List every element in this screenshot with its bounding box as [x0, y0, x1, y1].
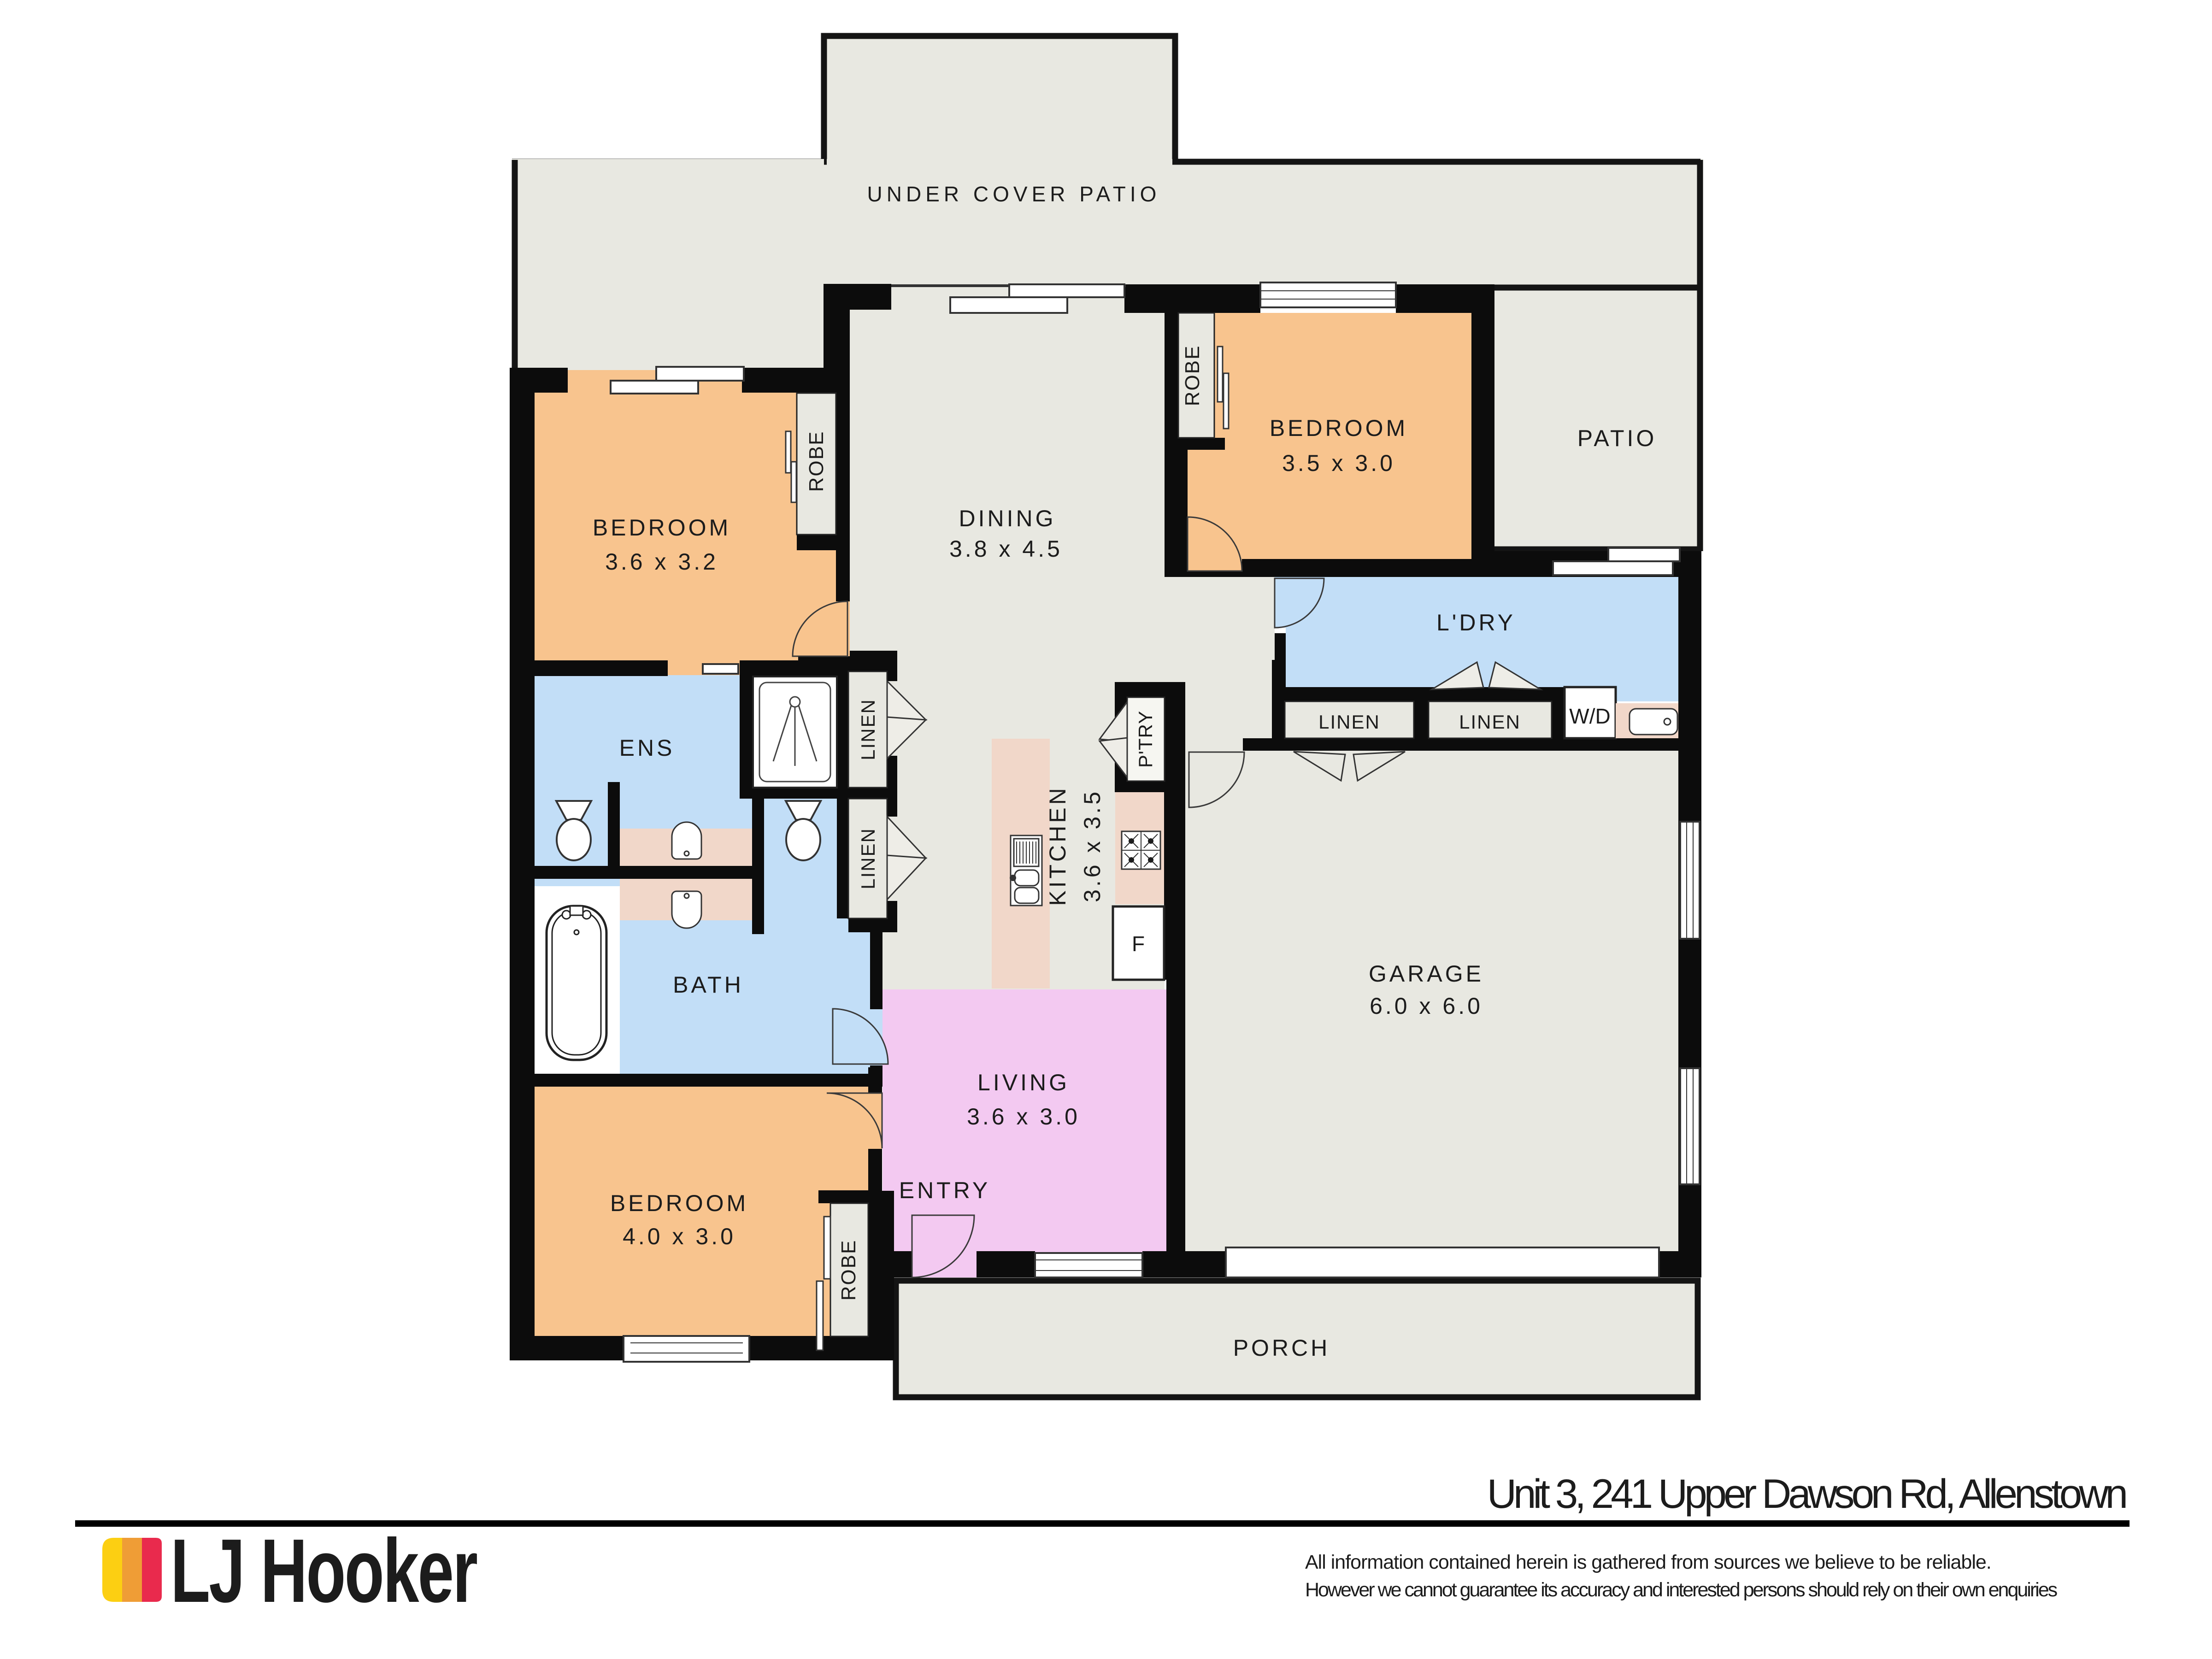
svg-text:ROBE: ROBE — [837, 1240, 860, 1301]
svg-text:BEDROOM: BEDROOM — [1270, 415, 1408, 441]
svg-text:L'DRY: L'DRY — [1436, 610, 1516, 635]
svg-text:ENS: ENS — [619, 735, 675, 761]
svg-text:Unit 3, 241 Upper Dawson Rd, A: Unit 3, 241 Upper Dawson Rd, Allenstown — [1487, 1471, 2126, 1517]
svg-text:F: F — [1132, 932, 1145, 956]
svg-text:3.8 x 4.5: 3.8 x 4.5 — [949, 536, 1063, 562]
svg-text:LINEN: LINEN — [857, 828, 879, 889]
svg-text:4.0 x 3.0: 4.0 x 3.0 — [623, 1224, 736, 1249]
svg-text:LINEN: LINEN — [857, 699, 879, 760]
svg-text:3.5 x 3.0: 3.5 x 3.0 — [1282, 450, 1395, 476]
svg-text:ROBE: ROBE — [1181, 345, 1204, 406]
svg-text:6.0 x 6.0: 6.0 x 6.0 — [1370, 993, 1483, 1019]
svg-text:However we cannot guarantee it: However we cannot guarantee its accuracy… — [1305, 1579, 2057, 1601]
svg-text:DINING: DINING — [959, 506, 1056, 531]
svg-text:KITCHEN: KITCHEN — [1045, 785, 1071, 906]
svg-text:3.6 x 3.2: 3.6 x 3.2 — [605, 549, 718, 575]
svg-text:GARAGE: GARAGE — [1369, 961, 1484, 987]
svg-text:BEDROOM: BEDROOM — [593, 515, 731, 541]
svg-text:P'TRY: P'TRY — [1135, 711, 1156, 768]
svg-text:UNDER COVER PATIO: UNDER COVER PATIO — [867, 182, 1161, 206]
svg-text:ROBE: ROBE — [805, 431, 828, 492]
svg-text:PATIO: PATIO — [1577, 425, 1657, 451]
svg-text:PORCH: PORCH — [1233, 1335, 1330, 1361]
svg-text:BATH: BATH — [673, 972, 744, 998]
svg-text:LINEN: LINEN — [1459, 711, 1521, 733]
svg-text:LINEN: LINEN — [1318, 711, 1380, 733]
svg-text:LIVING: LIVING — [977, 1070, 1070, 1095]
svg-text:3.6 x 3.0: 3.6 x 3.0 — [967, 1104, 1080, 1130]
svg-text:BEDROOM: BEDROOM — [610, 1190, 748, 1216]
svg-text:3.6 x 3.5: 3.6 x 3.5 — [1079, 789, 1105, 902]
svg-text:All information contained here: All information contained herein is gath… — [1305, 1551, 1991, 1573]
svg-text:W/D: W/D — [1569, 704, 1610, 728]
svg-text:LJ Hooker: LJ Hooker — [171, 1520, 477, 1621]
svg-text:ENTRY: ENTRY — [899, 1177, 991, 1203]
